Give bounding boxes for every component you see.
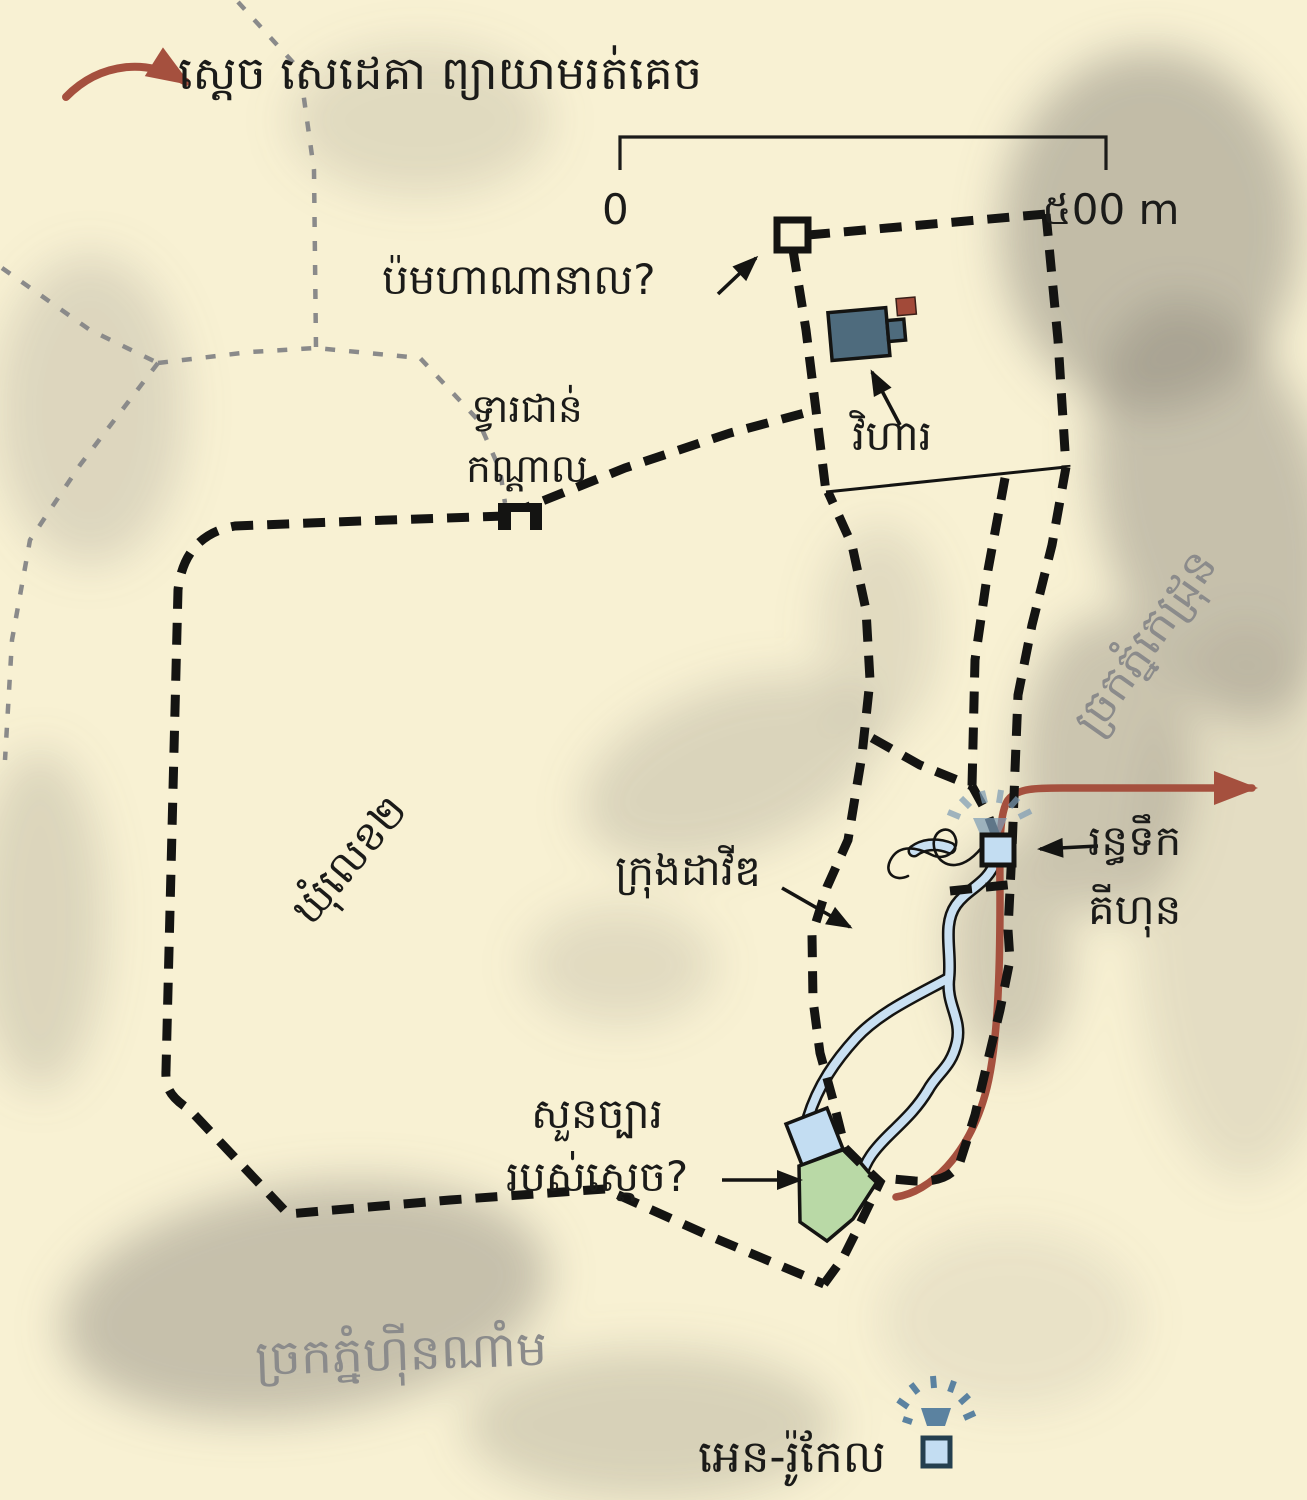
gihon-label-line2: គីហុន bbox=[1088, 875, 1181, 944]
arrow-to-tower bbox=[718, 258, 756, 294]
kings-garden-label: សួនច្បារ របស់ស្ដេច? bbox=[462, 1082, 732, 1208]
temple-building bbox=[827, 297, 920, 360]
en-rogel-label: អេន-រ៉ូកែល bbox=[698, 1424, 886, 1489]
kings-garden-label-line2: របស់ស្ដេច? bbox=[462, 1145, 732, 1208]
middle-gate-label-line1: ទ្វារជាន់ bbox=[432, 380, 622, 440]
tower-of-hananel-label: ប៉មហាណានាល? bbox=[382, 250, 656, 311]
middle-gate-label-line2: កណ្ដាល bbox=[432, 440, 622, 500]
map-of-jerusalem: ស្ដេច សេដេគា ព្យាយាមរត់គេច 0 ៥00 m ប៉មហា… bbox=[0, 0, 1307, 1500]
temple-mount-south bbox=[826, 467, 1066, 492]
gihon-spring-label: រន្ធទឹក គីហុន bbox=[1088, 806, 1181, 945]
scale-end-label: ៥00 m bbox=[1042, 180, 1179, 241]
legend-route-arrow bbox=[66, 67, 186, 97]
middle-gate-label: ទ្វារជាន់ កណ្ដាល bbox=[432, 380, 622, 501]
middle-gate-icon bbox=[498, 503, 542, 530]
en-rogel-marker bbox=[923, 1438, 950, 1466]
legend-label: ស្ដេច សេដេគា ព្យាយាមរត់គេច bbox=[178, 40, 702, 107]
temple-mount-west bbox=[793, 250, 826, 492]
city-of-david-label: ក្រុងដាវីឌ bbox=[615, 841, 761, 902]
gihon-spring-marker bbox=[982, 835, 1014, 865]
scale-start-label: 0 bbox=[602, 180, 629, 241]
temple-label: វិហារ bbox=[852, 406, 932, 467]
hinnom-valley-label: ច្រកភ្នំហ៊ីនណាំម bbox=[254, 1313, 548, 1394]
altar-marker bbox=[896, 297, 916, 316]
wall-middle bbox=[972, 478, 1005, 786]
tower-of-hananel-marker bbox=[777, 220, 808, 250]
gihon-label-line1: រន្ធទឹក bbox=[1088, 806, 1181, 875]
wall-cross-upper bbox=[872, 738, 972, 786]
kings-garden-label-line1: សួនច្បារ bbox=[462, 1082, 732, 1145]
